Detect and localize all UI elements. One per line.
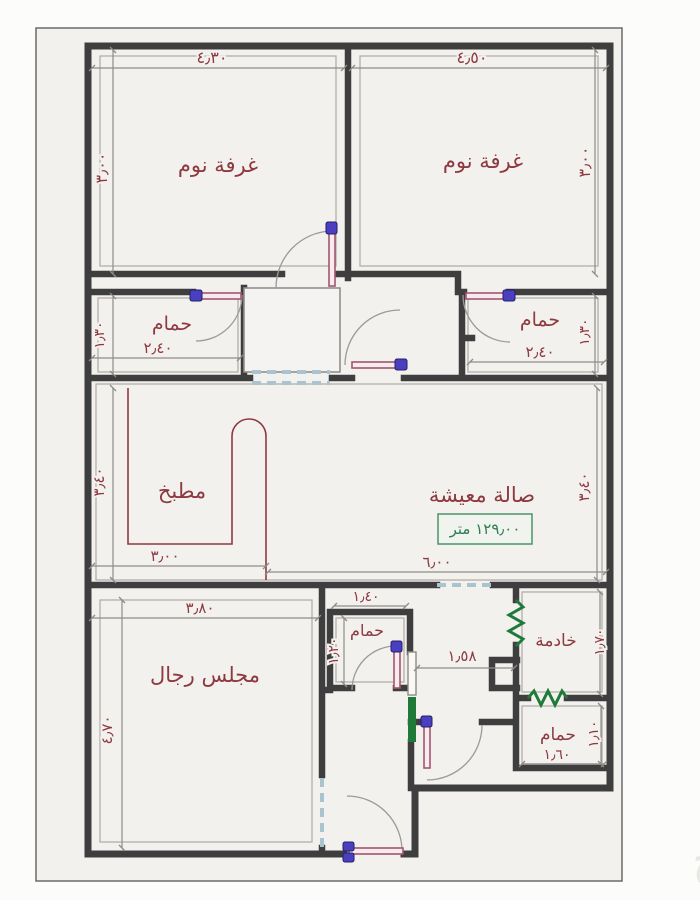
floor-plan-page: غرفة نوم غرفة نوم حمام حمام مطبخ صالة مع… [0, 0, 700, 900]
bath-middle-door-hinge-icon [391, 641, 402, 652]
maid-label: خادمة [535, 631, 576, 651]
bath-left-width-dim: ٢٫٤٠ [143, 339, 172, 357]
bath-right-label: حمام [520, 309, 560, 331]
lobby-door-leaf-white [408, 652, 416, 695]
bath-bottom-height-dim: ١٫١٠ [586, 720, 602, 747]
majlis-label: مجلس رجال [150, 663, 260, 687]
bedroom-left-label: غرفة نوم [178, 153, 258, 177]
bath-bottom-width-dim: ١٫٦٠ [543, 747, 570, 763]
lobby-green-door-strip [408, 697, 416, 742]
plan-sheet-border [36, 28, 622, 881]
entrance-door-leaf [349, 848, 403, 854]
bath-left-door-leaf [197, 293, 241, 299]
living-height-dim: ٣٫٤٠ [575, 472, 593, 501]
entrance-door-hinge-icon-b [343, 853, 354, 862]
watermark: حراج [692, 832, 700, 888]
bedroom-right-height-dim: ٣٫٠٠ [575, 147, 594, 178]
majlis-height-dim: ٤٫٧٠ [98, 715, 116, 744]
bedroom-right-label: غرفة نوم [443, 149, 523, 173]
bath-left-door-hinge-icon [190, 290, 202, 301]
bath-middle-door-leaf [394, 650, 400, 688]
bath-right-width-dim: ٢٫٤٠ [525, 343, 554, 361]
central-hall-block [244, 288, 340, 372]
lobby-inner-door-leaf [424, 726, 430, 768]
bath-middle-label: حمام [350, 621, 384, 640]
living-width-dim: ٦٫٠٠ [422, 553, 451, 571]
hallway-width-dim: ١٫٥٨ [447, 647, 476, 665]
maid-height-dim: ١٫٧٠ [592, 628, 608, 655]
bath-left-label: حمام [152, 313, 192, 335]
kitchen-height-dim: ٣٫٤٠ [90, 467, 108, 496]
bedroom-left-door-leaf [329, 232, 335, 286]
bath-middle-height-dim: ١٫٢٠ [326, 637, 342, 664]
bedroom-left-height-dim: ٣٫٠٠ [92, 153, 111, 184]
lobby-inner-door-hinge-icon [421, 716, 432, 727]
kitchen-label: مطبخ [158, 479, 206, 503]
bath-bottom-label: حمام [540, 725, 576, 745]
bedroom-left-width-dim: ٤٫٣٠ [197, 48, 228, 67]
area-value: ١٢٩٫٠٠ متر [449, 520, 521, 538]
hall-door-hinge-icon [395, 359, 407, 370]
majlis-width-dim: ٣٫٨٠ [185, 599, 214, 617]
bath-left-height-dim: ١٫٣٠ [92, 321, 108, 348]
bath-middle-width-dim: ١٫٤٠ [352, 589, 379, 605]
bedroom-right-width-dim: ٤٫٥٠ [457, 48, 488, 67]
bath-right-height-dim: ١٫٣٠ [577, 318, 593, 345]
floor-plan-svg: غرفة نوم غرفة نوم حمام حمام مطبخ صالة مع… [0, 0, 700, 900]
hall-door-leaf [352, 362, 398, 368]
kitchen-width-dim: ٣٫٠٠ [150, 547, 179, 565]
bedroom-left-door-hinge-icon [326, 222, 337, 234]
living-label: صالة معيشة [429, 483, 535, 507]
entrance-door-hinge-icon-a [343, 842, 354, 851]
bath-right-door-hinge-icon [503, 290, 515, 301]
